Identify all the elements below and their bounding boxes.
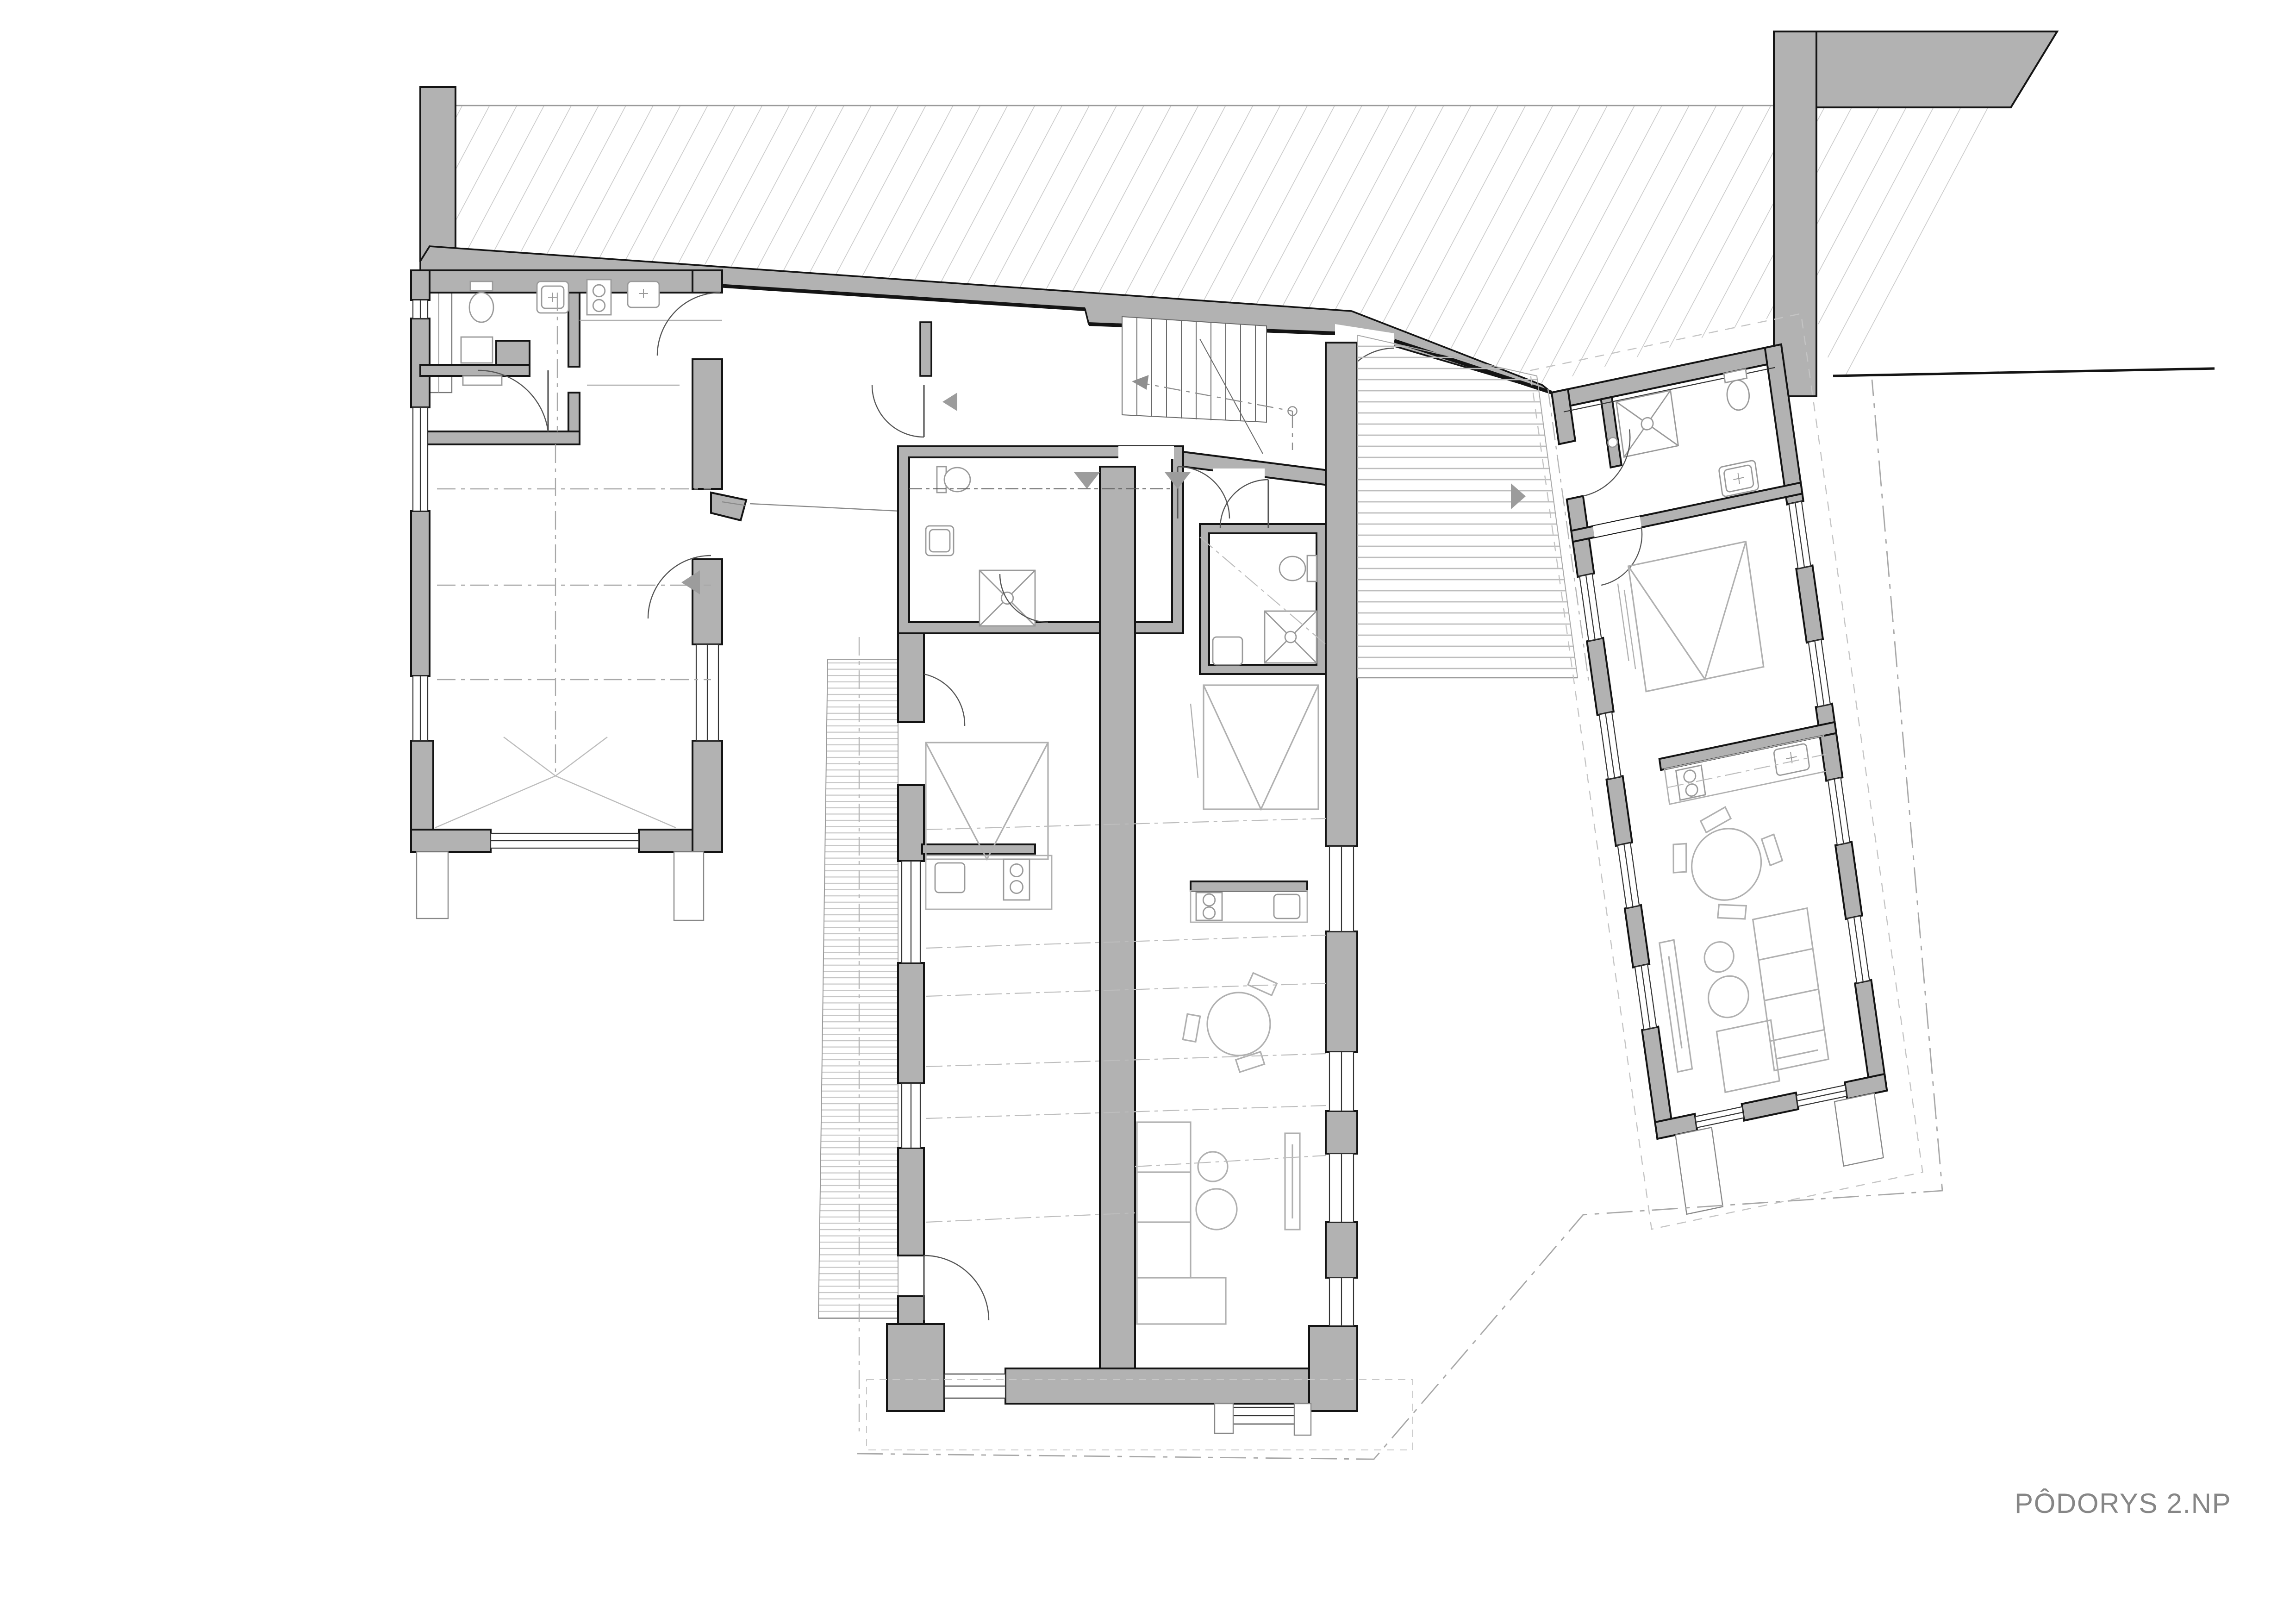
left-party-wall	[420, 87, 455, 261]
bath2-fixtures	[1213, 556, 1316, 665]
chair	[1673, 843, 1686, 873]
south-wall	[1005, 1368, 1309, 1404]
right-wing-bedroom	[1616, 542, 1763, 694]
right-wing-dining	[1666, 797, 1789, 932]
sofa	[1137, 1122, 1191, 1278]
pouf	[1198, 1152, 1228, 1181]
diagonal-wall-stub	[711, 493, 746, 520]
wall-pier	[898, 633, 924, 722]
bed	[1204, 685, 1318, 809]
left-wing-south-wall	[411, 830, 491, 852]
wall-pier	[411, 319, 430, 407]
door-arc	[872, 385, 924, 437]
washing-machine-icon	[461, 337, 493, 363]
sink-icon	[1274, 894, 1300, 918]
left-wing-entrance-arrow	[681, 570, 700, 594]
sink-icon	[1213, 637, 1242, 665]
right-wing-living	[1659, 908, 1830, 1101]
stairs	[1122, 317, 1297, 454]
pier-stubs	[417, 852, 704, 920]
apartment2-door-opening	[1213, 468, 1265, 489]
terrace	[1357, 335, 1589, 681]
toilet-icon	[944, 468, 970, 492]
chair	[1183, 1014, 1200, 1042]
plan-sheet: PÔDORYS 2.NP	[0, 0, 2296, 1624]
toilet-icon	[469, 293, 493, 322]
right-wing	[1530, 313, 1922, 1229]
living-furniture	[1137, 1122, 1300, 1324]
corridor-edge-line	[750, 504, 900, 511]
middle-wing	[818, 343, 1357, 1437]
party-wall-wedge	[1816, 31, 2057, 107]
room-divider-wall	[420, 431, 580, 444]
apartment2-entrance-arrow	[1165, 472, 1191, 489]
wall-pier	[411, 511, 430, 676]
left-wing-north-wall	[420, 270, 722, 293]
wall-stub	[920, 322, 931, 376]
toilet-tank	[470, 281, 493, 291]
pouf	[1196, 1189, 1237, 1230]
chair	[1718, 905, 1747, 919]
dining-table	[1207, 993, 1270, 1056]
apartment1-entrance-arrow	[1074, 472, 1100, 489]
spine-wall	[1100, 467, 1135, 1374]
toilet-icon	[1725, 378, 1751, 412]
bath-door-opening	[1593, 516, 1641, 537]
wall-pier	[1742, 1093, 1798, 1120]
stair-hall-entrance-arrow	[942, 393, 957, 411]
bed	[1628, 542, 1764, 692]
left-wing-windows	[413, 300, 718, 848]
west-deck	[818, 637, 898, 1437]
corridor	[722, 322, 957, 511]
toilet-icon	[1279, 556, 1305, 581]
left-wing	[411, 270, 746, 920]
door-arc	[657, 293, 720, 356]
dining-table	[1687, 822, 1766, 906]
floor-plan-canvas: PÔDORYS 2.NP	[0, 0, 2296, 1624]
bath-kitchen-divider	[568, 293, 580, 367]
left-wing-east-wall	[693, 359, 722, 489]
sink-icon	[935, 863, 965, 893]
bed	[926, 743, 1048, 859]
bath1-fixtures	[926, 467, 1035, 626]
site-edge-line	[1833, 369, 2215, 376]
right-party-wall	[1774, 31, 1816, 396]
plan-title: PÔDORYS 2.NP	[2015, 1488, 2231, 1519]
pouf	[1703, 939, 1735, 975]
shelf	[463, 376, 502, 385]
kitchen-wall	[1660, 722, 1836, 770]
apartment1-door-opening	[1118, 446, 1174, 459]
chair	[1248, 973, 1277, 995]
pouf	[1706, 972, 1751, 1021]
chair	[1762, 834, 1783, 865]
east-wall	[1326, 343, 1357, 846]
